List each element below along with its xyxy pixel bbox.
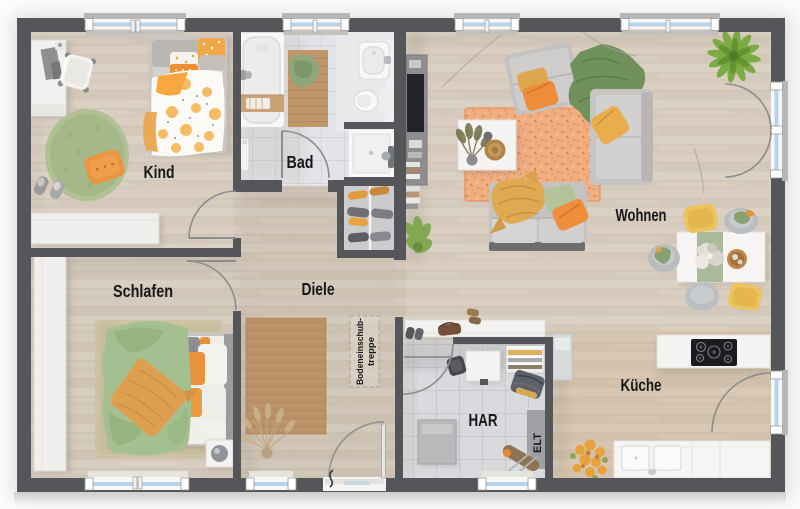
- svg-text:Bodeneinschub-: Bodeneinschub-: [355, 318, 365, 385]
- svg-text:ELT: ELT: [532, 433, 544, 453]
- svg-text:Küche: Küche: [621, 375, 662, 395]
- svg-text:Diele: Diele: [302, 279, 335, 299]
- svg-text:HAR: HAR: [469, 410, 498, 430]
- svg-text:treppe: treppe: [366, 337, 376, 366]
- svg-text:Schlafen: Schlafen: [113, 281, 173, 301]
- svg-text:Wohnen: Wohnen: [616, 205, 667, 225]
- svg-text:Bad: Bad: [287, 152, 314, 172]
- svg-text:Kind: Kind: [144, 162, 175, 182]
